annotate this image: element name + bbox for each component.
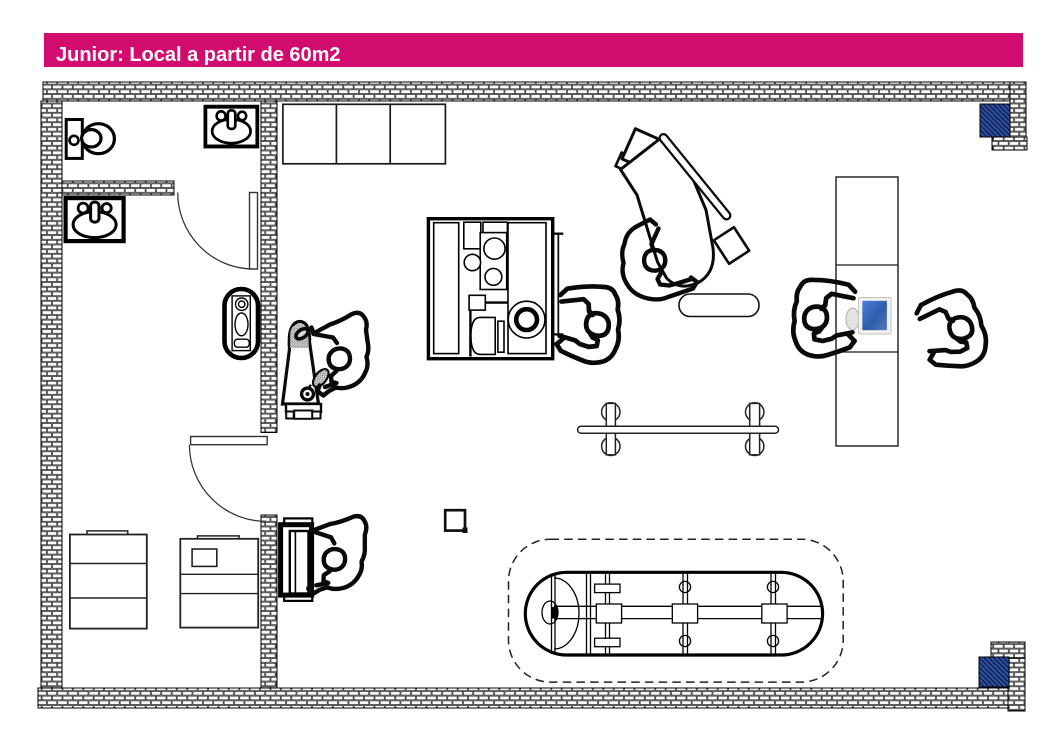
svg-text:Junior: Local a partir de 60m2: Junior: Local a partir de 60m2 [56,44,341,66]
